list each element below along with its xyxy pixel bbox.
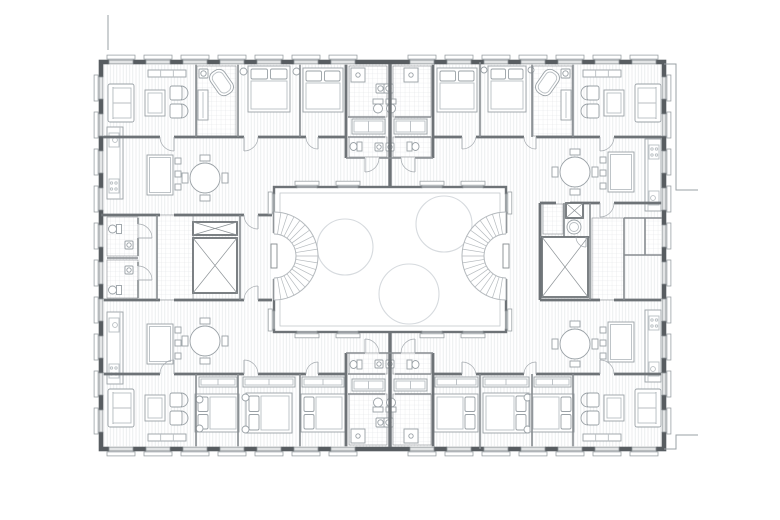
window-sill (144, 452, 172, 456)
floor-plan-page (0, 0, 780, 520)
stair-pier (271, 244, 277, 268)
shower-symbol (404, 68, 418, 82)
window-sill (667, 75, 671, 101)
sideboard-symbol (583, 434, 621, 441)
window-sill (295, 181, 319, 185)
sink-symbol (561, 69, 570, 78)
tiled-room (543, 204, 563, 234)
window-sill (556, 55, 584, 59)
sink-symbol (199, 69, 208, 78)
wardrobe-symbol (352, 379, 385, 391)
sofa-symbol (108, 389, 134, 427)
cabinet-symbol (561, 90, 571, 120)
window-sill (94, 149, 98, 175)
window-sill (329, 452, 357, 456)
shower-symbol (351, 68, 365, 82)
window-sill (255, 452, 283, 456)
window-sill (667, 297, 671, 323)
stair-pier (503, 244, 509, 268)
window-sill (107, 452, 135, 456)
counter-symbol (645, 139, 661, 211)
window-sill (336, 181, 360, 185)
toilet-symbol (407, 360, 419, 369)
window-sill (482, 55, 510, 59)
island-symbol (600, 322, 634, 362)
window-sill (461, 334, 485, 338)
window-sill (94, 334, 98, 360)
window-sill (667, 112, 671, 138)
sideboard-symbol (148, 70, 186, 77)
wardrobe-symbol (483, 377, 529, 387)
window-sill (508, 309, 512, 331)
wardrobe-symbol (352, 119, 385, 134)
window-sill (667, 371, 671, 397)
curved-stair (271, 212, 318, 300)
bed-symbol (434, 394, 478, 432)
tree-icon (317, 219, 373, 275)
window-sill (94, 408, 98, 434)
window-sill (556, 452, 584, 456)
toilet-symbol (407, 142, 419, 151)
nightstand-symbol (196, 396, 203, 403)
tiled-room (592, 218, 624, 300)
window-sill (268, 192, 272, 214)
window-sill (445, 55, 473, 59)
sink-symbol (375, 143, 383, 151)
coffee-symbol (145, 395, 165, 421)
window-sill (94, 186, 98, 212)
window-sill (94, 260, 98, 286)
window-sill (94, 371, 98, 397)
tree-icon (379, 264, 439, 324)
window-sill (667, 408, 671, 434)
coffee-symbol (604, 90, 624, 116)
site-boundary-line (664, 435, 698, 449)
window-sill (445, 452, 473, 456)
toilet-symbol (373, 99, 383, 113)
bed-symbol (530, 394, 574, 432)
curved-stair (462, 212, 509, 300)
window-sill (420, 334, 444, 338)
window-sill (408, 452, 436, 456)
shower-symbol (351, 429, 365, 443)
window-sill (519, 55, 547, 59)
island-symbol (147, 155, 181, 195)
window-sill (181, 452, 209, 456)
window-sill (420, 181, 444, 185)
bed-symbol (437, 68, 477, 112)
nightstand-symbol (481, 67, 487, 73)
window-sill (94, 112, 98, 138)
window-sill (181, 55, 209, 59)
sink-symbol (125, 266, 133, 274)
sideboard-symbol (583, 70, 621, 77)
window-sill (667, 223, 671, 249)
coffee-symbol (604, 395, 624, 421)
sofa-symbol (108, 84, 134, 122)
elevator-shaft (566, 203, 583, 218)
wardrobe-symbol (302, 377, 344, 387)
wardrobe-symbol (199, 377, 237, 387)
nightstand-symbol (242, 394, 249, 401)
nightstand-symbol (293, 68, 300, 75)
sink-symbol (375, 360, 383, 368)
window-sill (508, 192, 512, 214)
coffee-symbol (145, 90, 165, 116)
bed-symbol (246, 393, 292, 433)
window-sill (255, 55, 283, 59)
sofa-symbol (635, 84, 661, 122)
nightstand-symbol (528, 67, 534, 73)
sink-symbol (125, 241, 133, 249)
window-sill (94, 297, 98, 323)
stairs (271, 212, 509, 300)
bed-symbol (488, 66, 526, 112)
window-sill (268, 309, 272, 331)
wardrobe-symbol (394, 379, 427, 391)
window-sill (329, 55, 357, 59)
cabinet-symbol (198, 90, 208, 120)
window-sill (292, 452, 320, 456)
bed-symbol (301, 394, 345, 432)
window-sill (408, 55, 436, 59)
window-sill (218, 452, 246, 456)
window-sill (218, 55, 246, 59)
toilet-symbol (373, 398, 383, 412)
island-symbol (600, 152, 634, 192)
window-sill (292, 55, 320, 59)
elevator-shaft (193, 222, 237, 235)
toilet-symbol (350, 360, 362, 369)
bed-symbol (303, 68, 343, 112)
toilet-symbol (109, 225, 122, 234)
window-sill (593, 55, 621, 59)
elevator-shaft (193, 238, 237, 293)
window-sill (461, 181, 485, 185)
nightstand-symbol (240, 68, 247, 75)
nightstand-symbol (196, 425, 203, 432)
wardrobe-symbol (435, 377, 478, 387)
courtyard-trees (317, 196, 472, 324)
window-sill (667, 149, 671, 175)
sideboard-symbol (148, 434, 186, 441)
window-sill (94, 75, 98, 101)
window-sill (667, 260, 671, 286)
toilet-symbol (109, 286, 122, 295)
island-symbol (147, 324, 181, 364)
window-sill (295, 334, 319, 338)
window-sill (667, 334, 671, 360)
bed-symbol (248, 66, 290, 112)
tiled-room (107, 217, 138, 256)
window-sill (519, 452, 547, 456)
shower-symbol (404, 429, 418, 443)
window-sill (630, 452, 658, 456)
nightstand-symbol (242, 426, 249, 433)
toilet-symbol (350, 142, 362, 151)
wardrobe-symbol (394, 119, 427, 134)
wardrobe-symbol (534, 377, 571, 387)
window-sill (94, 223, 98, 249)
window-sill (667, 186, 671, 212)
sofa-symbol (635, 389, 661, 427)
window-sill (107, 55, 135, 59)
sinkround-symbol (567, 220, 581, 234)
floor-plan-drawing (0, 0, 780, 520)
tiled-room (157, 215, 193, 300)
window-sill (593, 452, 621, 456)
tiled-room (645, 218, 664, 255)
window-sill (144, 55, 172, 59)
window-sill (336, 334, 360, 338)
window-sill (630, 55, 658, 59)
wardrobe-symbol (243, 377, 295, 387)
window-sill (482, 452, 510, 456)
bed-symbol (483, 393, 529, 433)
counter-symbol (645, 310, 661, 382)
